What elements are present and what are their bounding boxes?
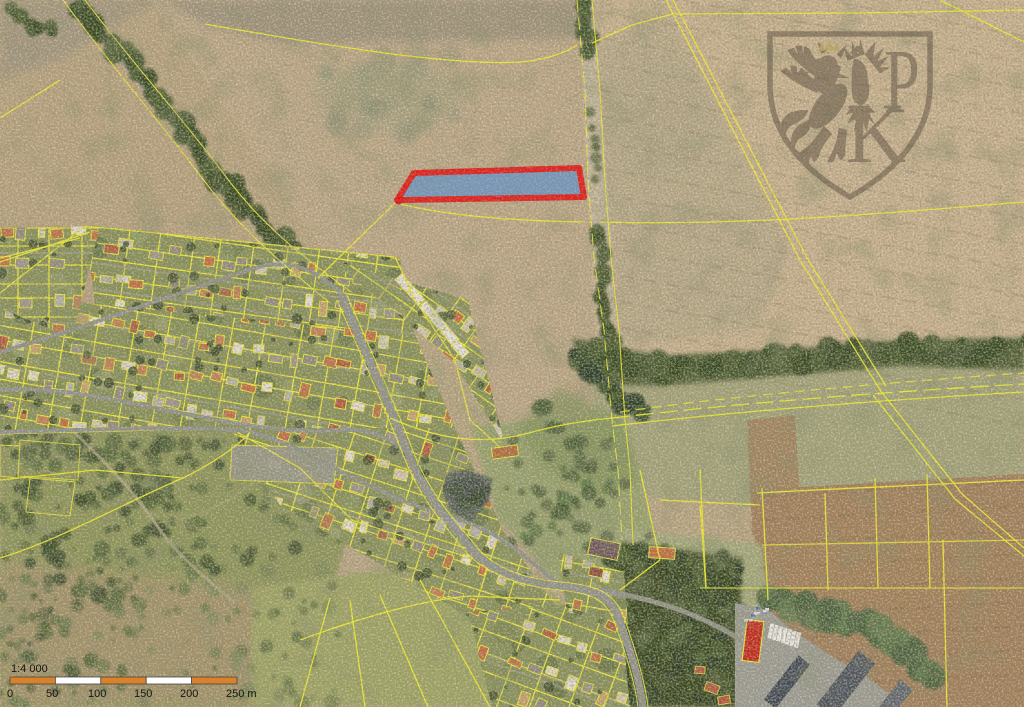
svg-text:200: 200 bbox=[180, 688, 198, 700]
svg-text:250 m: 250 m bbox=[226, 688, 257, 700]
svg-text:K: K bbox=[846, 87, 906, 181]
svg-text:100: 100 bbox=[88, 688, 106, 700]
svg-text:50: 50 bbox=[46, 688, 58, 700]
svg-text:1:4 000: 1:4 000 bbox=[11, 663, 48, 675]
svg-text:150: 150 bbox=[134, 688, 152, 700]
svg-text:0: 0 bbox=[7, 688, 13, 700]
